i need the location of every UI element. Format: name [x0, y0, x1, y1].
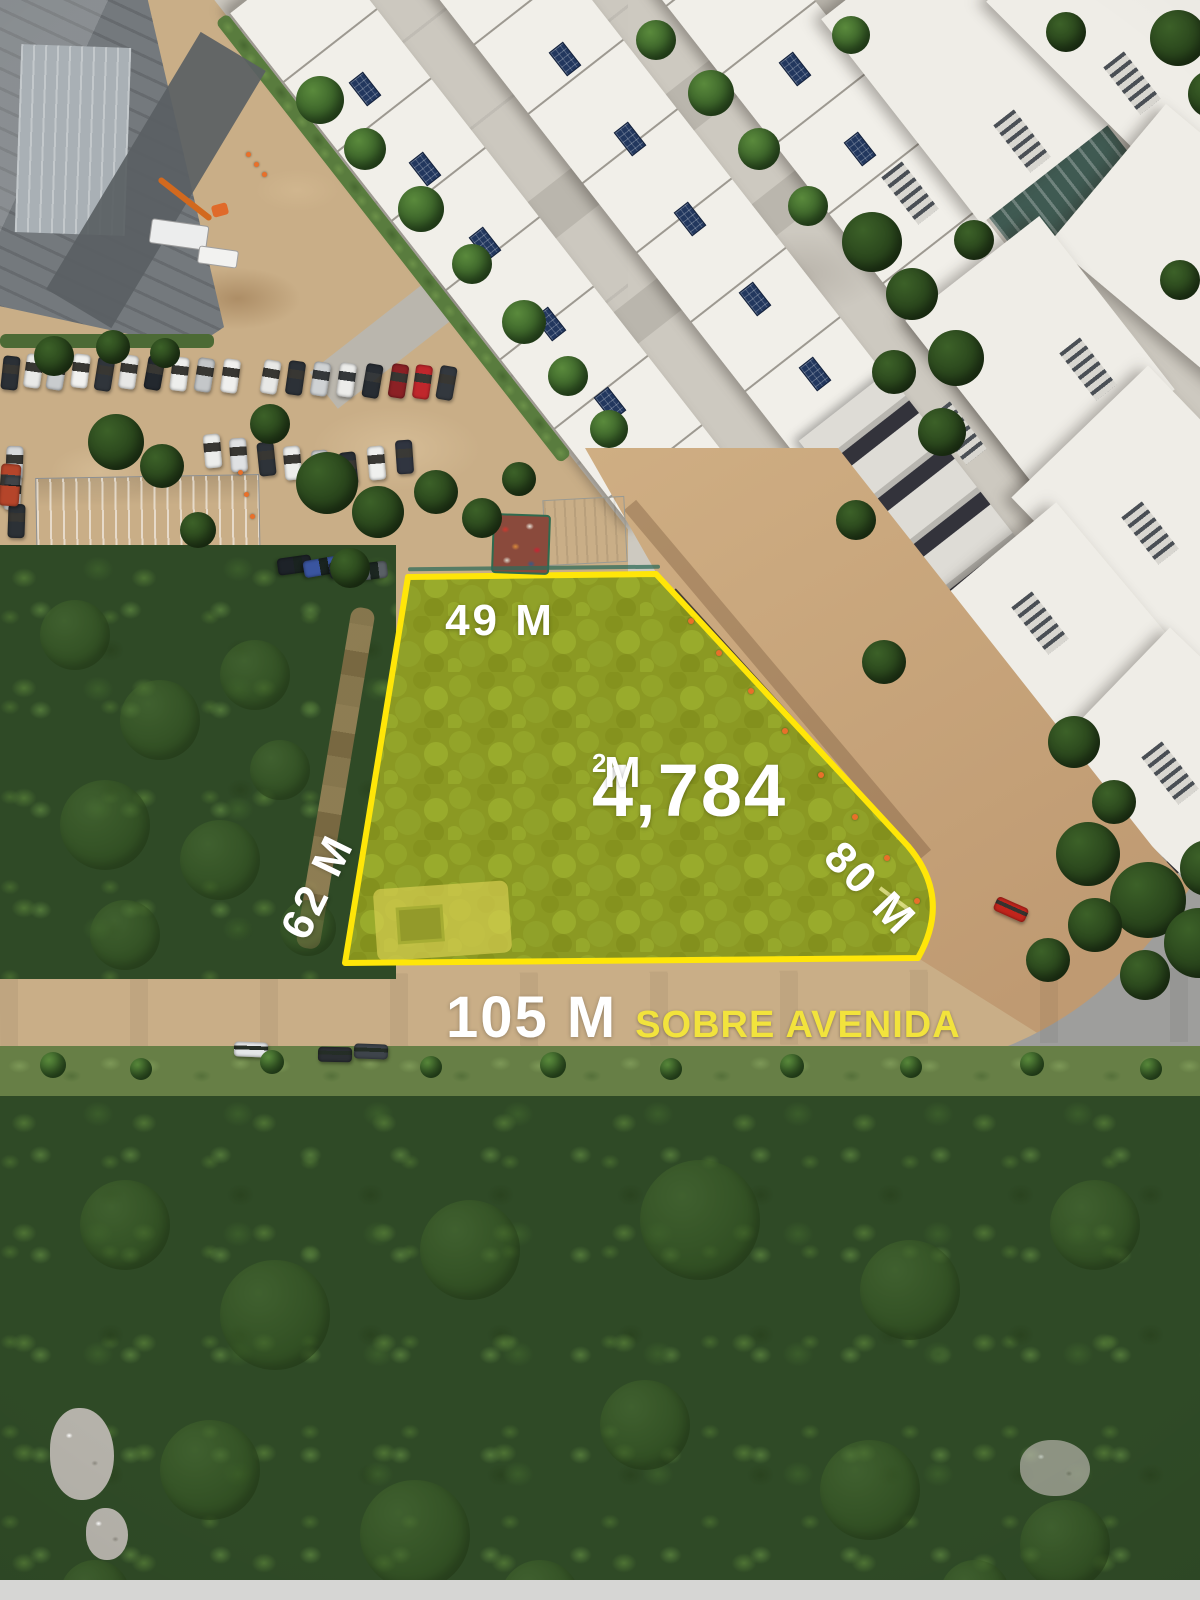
tree [120, 680, 200, 760]
frontage-label: 105 M SOBRE AVENIDA [446, 984, 961, 1051]
tree [462, 498, 502, 538]
tree [220, 1260, 330, 1370]
tree [832, 16, 870, 54]
traffic-cone [852, 814, 858, 820]
traffic-cone [782, 728, 788, 734]
tree [738, 128, 780, 170]
car [367, 445, 387, 480]
tree [636, 20, 676, 60]
tree [180, 512, 216, 548]
tree [548, 356, 588, 396]
tree [420, 1200, 520, 1300]
traffic-cone [884, 855, 890, 861]
tree [360, 1480, 470, 1590]
traffic-cone [748, 688, 754, 694]
tree [160, 1420, 260, 1520]
tree [80, 1180, 170, 1270]
tree [836, 500, 876, 540]
tree [88, 414, 144, 470]
tree [540, 1052, 566, 1078]
tree [60, 780, 150, 870]
frontage-caption: SOBRE AVENIDA [635, 1004, 960, 1047]
tree [928, 330, 984, 386]
tree [414, 470, 458, 514]
traffic-cone [818, 772, 824, 778]
car [395, 439, 414, 474]
tree [220, 640, 290, 710]
tree [1140, 1058, 1162, 1080]
image-bottom-edge [0, 1580, 1200, 1600]
tree [1068, 898, 1122, 952]
tree [660, 1058, 682, 1080]
tree [452, 244, 492, 284]
tree [130, 1058, 152, 1080]
truck [0, 463, 21, 506]
tree [330, 548, 370, 588]
car [0, 355, 20, 391]
traffic-cone [254, 162, 259, 167]
tree [1150, 10, 1200, 66]
tree [502, 300, 546, 344]
tree [872, 350, 916, 394]
tree [862, 640, 906, 684]
site-shed [542, 496, 627, 566]
traffic-cone [250, 514, 255, 519]
tree [398, 186, 444, 232]
tree [954, 220, 994, 260]
tree [1046, 12, 1086, 52]
car [354, 1043, 389, 1059]
tree [352, 486, 404, 538]
top-edge-measurement: 49 M [420, 596, 580, 646]
tree [296, 76, 344, 124]
frontage-value: 105 M [446, 984, 617, 1051]
tree [344, 128, 386, 170]
tree [1050, 1180, 1140, 1270]
tree [40, 1052, 66, 1078]
tree [1056, 822, 1120, 886]
tree [1120, 950, 1170, 1000]
traffic-cone [246, 152, 251, 157]
traffic-cone [244, 492, 249, 497]
tree [1160, 260, 1200, 300]
tree [180, 820, 260, 900]
tree [40, 600, 110, 670]
tree [250, 740, 310, 800]
tree [502, 462, 536, 496]
aerial-photo: 49 M 62 M 80 M 4,784M2 105 M SOBRE AVENI… [0, 0, 1200, 1600]
traffic-cone [262, 172, 267, 177]
tree [1092, 780, 1136, 824]
tree [780, 1054, 804, 1078]
tree [150, 338, 180, 368]
tree [600, 1380, 690, 1470]
tree [420, 1056, 442, 1078]
tree [1048, 716, 1100, 768]
traffic-cone [688, 618, 694, 624]
tree [296, 452, 358, 514]
tree [260, 1050, 284, 1074]
tree [900, 1056, 922, 1078]
tree [140, 444, 184, 488]
tree [640, 1160, 760, 1280]
tree [1020, 1500, 1110, 1590]
traffic-cone [238, 470, 243, 475]
tree [1020, 1052, 1044, 1076]
tree [90, 900, 160, 970]
car [256, 441, 276, 477]
tree [788, 186, 828, 226]
area-unit: M [604, 748, 641, 798]
tree [250, 404, 290, 444]
car [229, 437, 248, 472]
car [7, 504, 25, 539]
area-exponent: 2 [592, 748, 606, 779]
tree [1026, 938, 1070, 982]
car [203, 433, 223, 468]
tree [688, 70, 734, 116]
tree [34, 336, 74, 376]
tree [860, 1240, 960, 1340]
tree [96, 330, 130, 364]
car [318, 1047, 352, 1063]
tree [590, 410, 628, 448]
tree [886, 268, 938, 320]
tree [918, 408, 966, 456]
tree [820, 1440, 920, 1540]
tree [842, 212, 902, 272]
traffic-cone [716, 650, 722, 656]
